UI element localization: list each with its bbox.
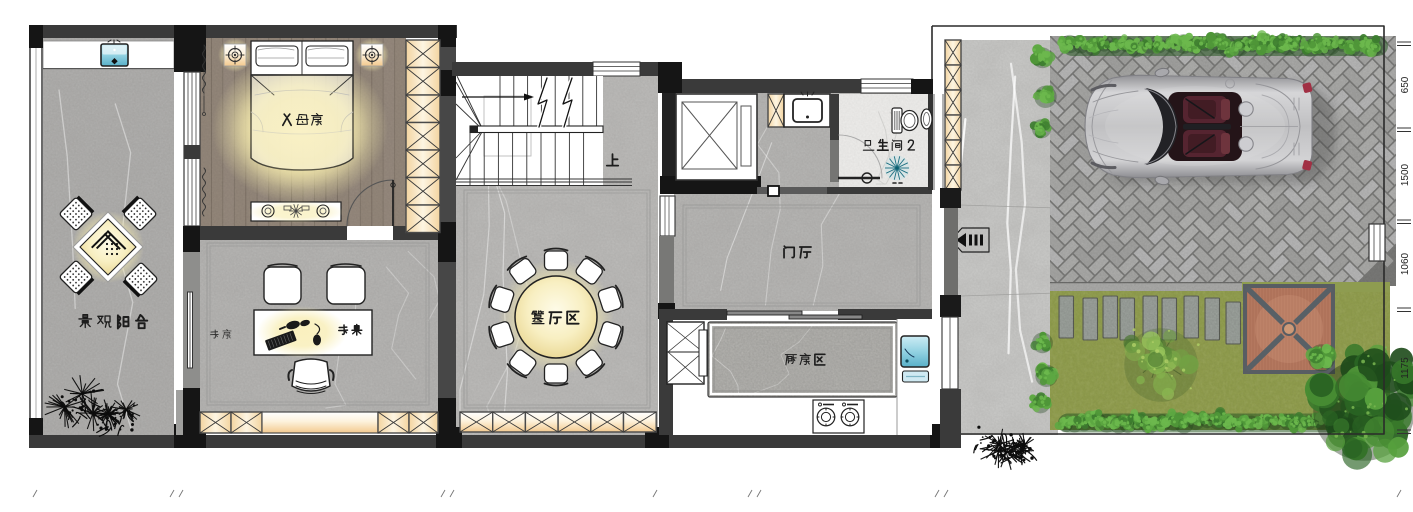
svg-text:1175: 1175 [1400, 357, 1411, 379]
svg-text:1060: 1060 [1400, 252, 1411, 275]
svg-text:650: 650 [1400, 76, 1411, 93]
svg-text:1500: 1500 [1400, 163, 1411, 186]
